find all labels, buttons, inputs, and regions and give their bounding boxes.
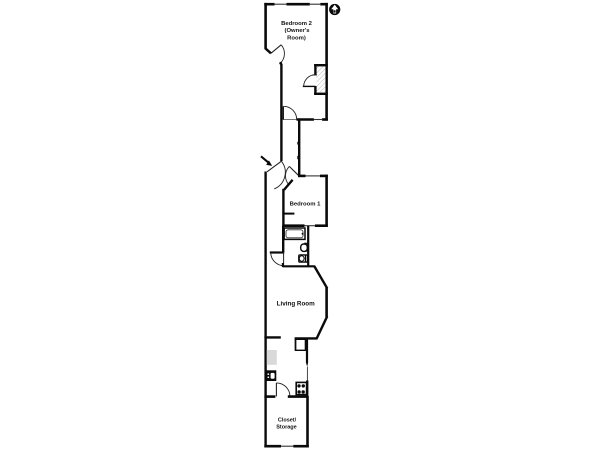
- svg-text:Storage: Storage: [276, 424, 296, 430]
- svg-text:Bedroom 2: Bedroom 2: [281, 21, 312, 27]
- svg-text:(Owner's: (Owner's: [285, 28, 311, 34]
- svg-text:Bedroom 1: Bedroom 1: [290, 201, 321, 207]
- svg-text:Room): Room): [287, 35, 306, 41]
- svg-text:Living Room: Living Room: [277, 300, 316, 307]
- svg-text:Closet/: Closet/: [278, 417, 297, 423]
